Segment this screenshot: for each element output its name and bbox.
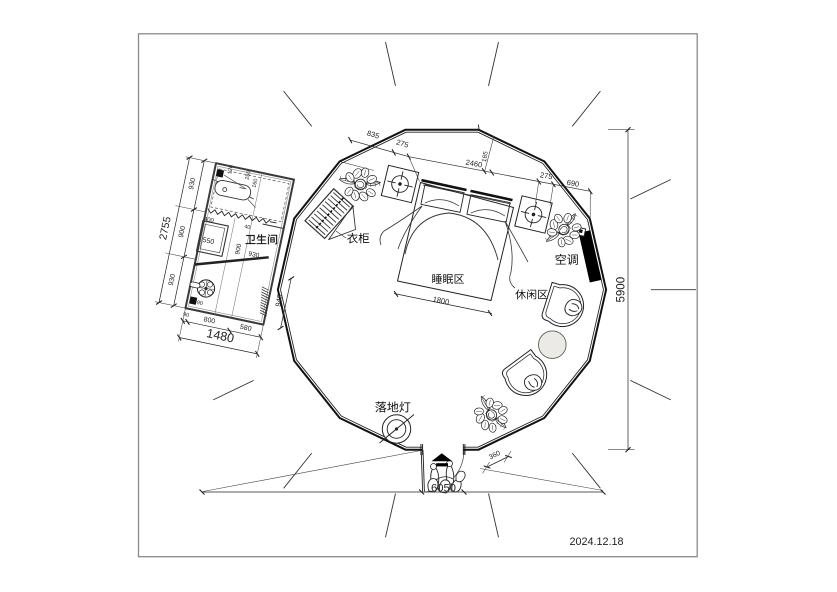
svg-text:6050: 6050 [431,483,456,495]
svg-text:2024.12.18: 2024.12.18 [569,536,623,548]
svg-text:5900: 5900 [616,277,628,303]
svg-text:90: 90 [196,300,203,307]
svg-text:40: 40 [244,224,251,231]
